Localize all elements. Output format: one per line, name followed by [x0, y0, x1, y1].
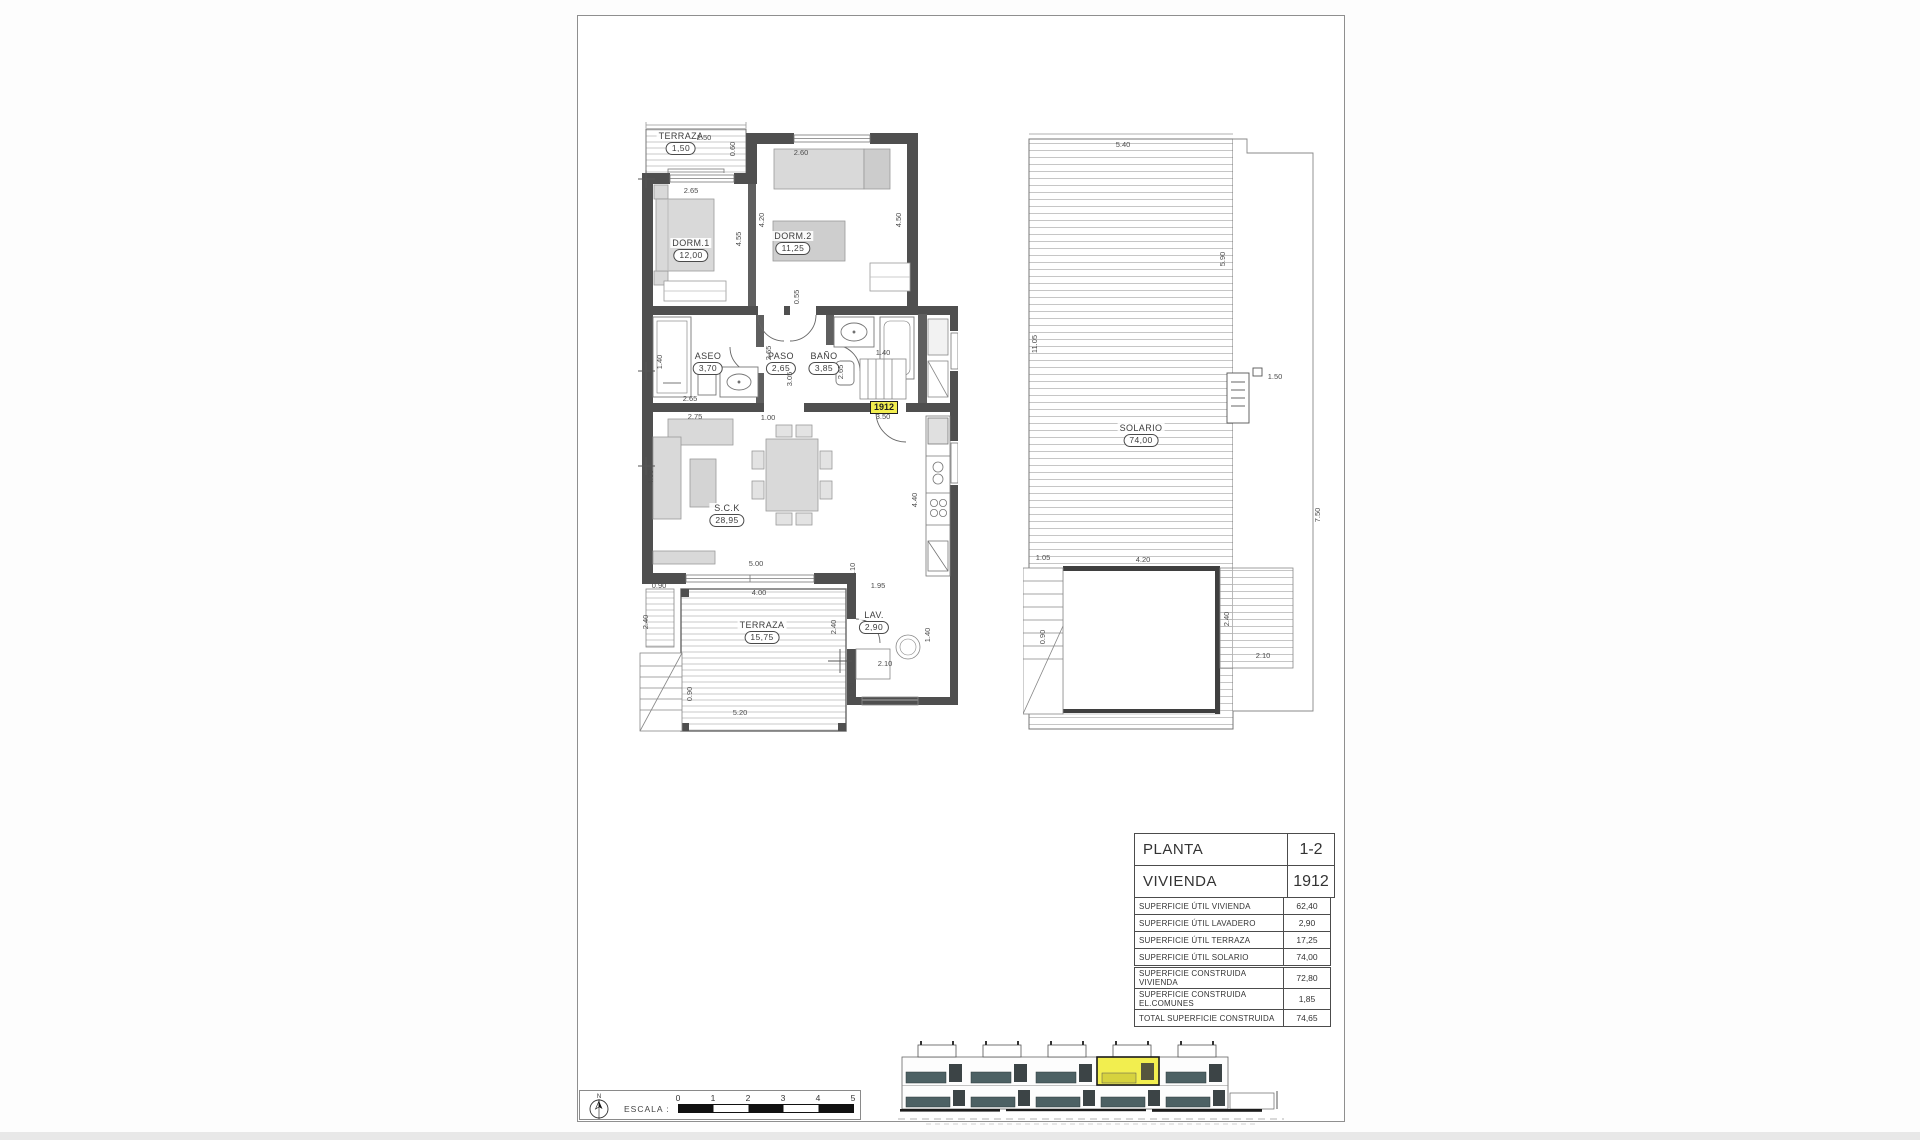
- dim-label: 7.50: [1314, 508, 1322, 523]
- scale-tick: 2: [746, 1093, 751, 1103]
- bottom-edge-strip: [0, 1132, 1920, 1140]
- room-area: 74,00: [1123, 434, 1158, 447]
- area-label: SUPERFICIE CONSTRUIDA VIVIENDA: [1135, 968, 1284, 989]
- dim-label: 2.50: [697, 134, 712, 142]
- title-table: PLANTA 1-2 VIVIENDA 1912: [1134, 833, 1335, 898]
- dim-label: 2.65: [765, 346, 773, 361]
- scale-tick: 0: [676, 1093, 681, 1103]
- scale-box: N ESCALA : 0 1 2 3 4 5: [579, 1090, 861, 1120]
- room-area: 3,85: [809, 362, 839, 375]
- dim-label: 1.50: [1268, 373, 1283, 381]
- room-label-sck: S.C.K 28,95: [709, 503, 744, 527]
- annex: [1230, 1093, 1274, 1109]
- kitchen: [926, 416, 950, 576]
- dim-label: 2.60: [794, 149, 809, 157]
- area-label: TOTAL SUPERFICIE CONSTRUIDA: [1135, 1010, 1284, 1027]
- table-row: SUPERFICIE CONSTRUIDA EL.COMUNES 1,85: [1135, 989, 1331, 1010]
- void-opening: [1063, 566, 1220, 714]
- built-area-table: SUPERFICIE CONSTRUIDA VIVIENDA 72,80 SUP…: [1134, 967, 1331, 1027]
- furniture-dorm2: [773, 149, 910, 291]
- room-label-terraza-main: TERRAZA 15,75: [738, 620, 787, 644]
- dim-label: 0.55: [793, 290, 801, 305]
- building-elevation: [896, 1041, 1286, 1126]
- area-label: SUPERFICIE ÚTIL VIVIENDA: [1135, 898, 1284, 915]
- scale-bar-graphic: [678, 1104, 854, 1113]
- lavadero: [856, 635, 920, 705]
- room-area: 12,00: [673, 249, 708, 262]
- area-label: SUPERFICIE ÚTIL TERRAZA: [1135, 932, 1284, 949]
- room-name: DORM.1: [670, 238, 711, 248]
- scale-tick: 1: [711, 1093, 716, 1103]
- dim-label: 5.90: [1219, 252, 1227, 267]
- room-label-dorm1: DORM.1 12,00: [670, 238, 711, 262]
- dim-label: 4.00: [752, 589, 767, 597]
- room-name: DORM.2: [772, 231, 813, 241]
- table-row: SUPERFICIE ÚTIL LAVADERO 2,90: [1135, 915, 1331, 932]
- area-value: 72,80: [1284, 968, 1331, 989]
- highlighted-unit: [1097, 1057, 1159, 1085]
- area-label: SUPERFICIE CONSTRUIDA EL.COMUNES: [1135, 989, 1284, 1010]
- dim-label: 2.65: [683, 395, 698, 403]
- room-area: 3,70: [693, 362, 723, 375]
- dim-label: 2.40: [642, 615, 650, 630]
- dim-label: 5.00: [749, 560, 764, 568]
- ground-line: [900, 1109, 1262, 1112]
- solarium-plan: SOLARIO 74,00 5.40 5.90 11.05 1.50 7.50 …: [1023, 126, 1323, 761]
- area-value: 74,65: [1284, 1010, 1331, 1027]
- dim-label: 4.50: [895, 213, 903, 228]
- room-area: 2,90: [859, 621, 889, 634]
- dim-label: 4.55: [735, 232, 743, 247]
- room-name: TERRAZA: [738, 620, 787, 630]
- floor-plan: TERRAZA 1,50 DORM.1 12,00 DORM.2 11,25 A…: [638, 121, 958, 736]
- floor-plan-drawing: [638, 121, 958, 736]
- dim-label: 11.05: [1031, 335, 1039, 353]
- area-value: 2,90: [1284, 915, 1331, 932]
- dim-label: 0.90: [686, 687, 694, 702]
- room-area: 15,75: [744, 631, 779, 644]
- elevation-drawing: [896, 1041, 1286, 1126]
- dim-label: 5.20: [733, 709, 748, 717]
- dim-label: 2.10: [1256, 652, 1271, 660]
- dim-label: 0.60: [729, 142, 737, 157]
- table-row: SUPERFICIE ÚTIL VIVIENDA 62,40: [1135, 898, 1331, 915]
- roof-posts: [920, 1041, 1214, 1045]
- dim-label: 4.20: [1136, 556, 1151, 564]
- dim-label: 1.40: [924, 628, 932, 643]
- exterior-stairs: [640, 653, 682, 731]
- useful-area-table: SUPERFICIE ÚTIL VIVIENDA 62,40 SUPERFICI…: [1134, 897, 1331, 966]
- furniture-sck: [653, 419, 832, 564]
- dim-label: 2.10: [878, 660, 893, 668]
- utility-column: [928, 319, 948, 397]
- dim-label: 5.40: [1116, 141, 1131, 149]
- dim-label: 1.95: [871, 582, 886, 590]
- room-name: BAÑO: [808, 351, 839, 361]
- scale-tick: 4: [816, 1093, 821, 1103]
- table-row: VIVIENDA 1912: [1135, 866, 1335, 898]
- area-value: 1,85: [1284, 989, 1331, 1010]
- room-label-solario: SOLARIO 74,00: [1118, 423, 1165, 447]
- table-row: TOTAL SUPERFICIE CONSTRUIDA 74,65: [1135, 1010, 1331, 1027]
- title-table-label: VIVIENDA: [1135, 866, 1288, 898]
- table-row: SUPERFICIE ÚTIL TERRAZA 17,25: [1135, 932, 1331, 949]
- dim-label: 2.40: [1223, 612, 1231, 627]
- dim-label: 1.00: [761, 414, 776, 422]
- table-row: SUPERFICIE ÚTIL SOLARIO 74,00: [1135, 949, 1331, 966]
- room-label-bano: BAÑO 3,85: [808, 351, 839, 375]
- scale-label: ESCALA :: [624, 1104, 670, 1114]
- room-name: LAV.: [859, 610, 889, 620]
- table-row: SUPERFICIE CONSTRUIDA VIVIENDA 72,80: [1135, 968, 1331, 989]
- dim-label: 2.65: [837, 365, 845, 380]
- dim-label: 1.40: [876, 349, 891, 357]
- room-name: SOLARIO: [1118, 423, 1165, 433]
- dim-label: 2.40: [830, 620, 838, 635]
- dim-label: 4.40: [911, 493, 919, 508]
- area-value: 62,40: [1284, 898, 1331, 915]
- dim-label: 0.90: [1039, 630, 1047, 645]
- scale-tick: 3: [781, 1093, 786, 1103]
- attic-boxes: [918, 1045, 1216, 1057]
- table-row: PLANTA 1-2: [1135, 834, 1335, 866]
- room-area: 11,25: [776, 242, 811, 255]
- dim-label: 4.20: [758, 213, 766, 228]
- dim-label: 1.10: [849, 563, 857, 578]
- dim-label: 2.75: [688, 413, 703, 421]
- room-label-dorm2: DORM.2 11,25: [772, 231, 813, 255]
- room-name: S.C.K: [709, 503, 744, 513]
- dim-label: 3.50: [876, 413, 891, 421]
- solarium-drawing: [1023, 126, 1323, 761]
- area-label: SUPERFICIE ÚTIL SOLARIO: [1135, 949, 1284, 966]
- area-value: 74,00: [1284, 949, 1331, 966]
- screenshot-canvas: TERRAZA 1,50 DORM.1 12,00 DORM.2 11,25 A…: [0, 0, 1920, 1140]
- room-area: 1,50: [666, 142, 696, 155]
- dim-label: 1.05: [1036, 554, 1051, 562]
- title-table-label: PLANTA: [1135, 834, 1288, 866]
- area-value: 17,25: [1284, 932, 1331, 949]
- dim-label: 1.40: [656, 355, 664, 370]
- room-label-lavadero: LAV. 2,90: [859, 610, 889, 634]
- title-table-value: 1-2: [1288, 834, 1335, 866]
- dim-label: 0.90: [652, 582, 667, 590]
- drawing-sheet: TERRAZA 1,50 DORM.1 12,00 DORM.2 11,25 A…: [577, 15, 1345, 1122]
- entry-landing: [860, 359, 906, 399]
- north-arrow-icon: N: [586, 1092, 614, 1120]
- dim-label: 2.65: [684, 187, 699, 195]
- scale-tick: 5: [851, 1093, 856, 1103]
- room-label-aseo: ASEO 3,70: [693, 351, 724, 375]
- room-area: 28,95: [709, 514, 744, 527]
- dim-label: 1.20: [848, 683, 856, 698]
- dim-label: 3.05: [786, 372, 794, 387]
- area-label: SUPERFICIE ÚTIL LAVADERO: [1135, 915, 1284, 932]
- title-table-value: 1912: [1288, 866, 1335, 898]
- room-name: ASEO: [693, 351, 724, 361]
- dim-label: 4.00: [647, 470, 655, 485]
